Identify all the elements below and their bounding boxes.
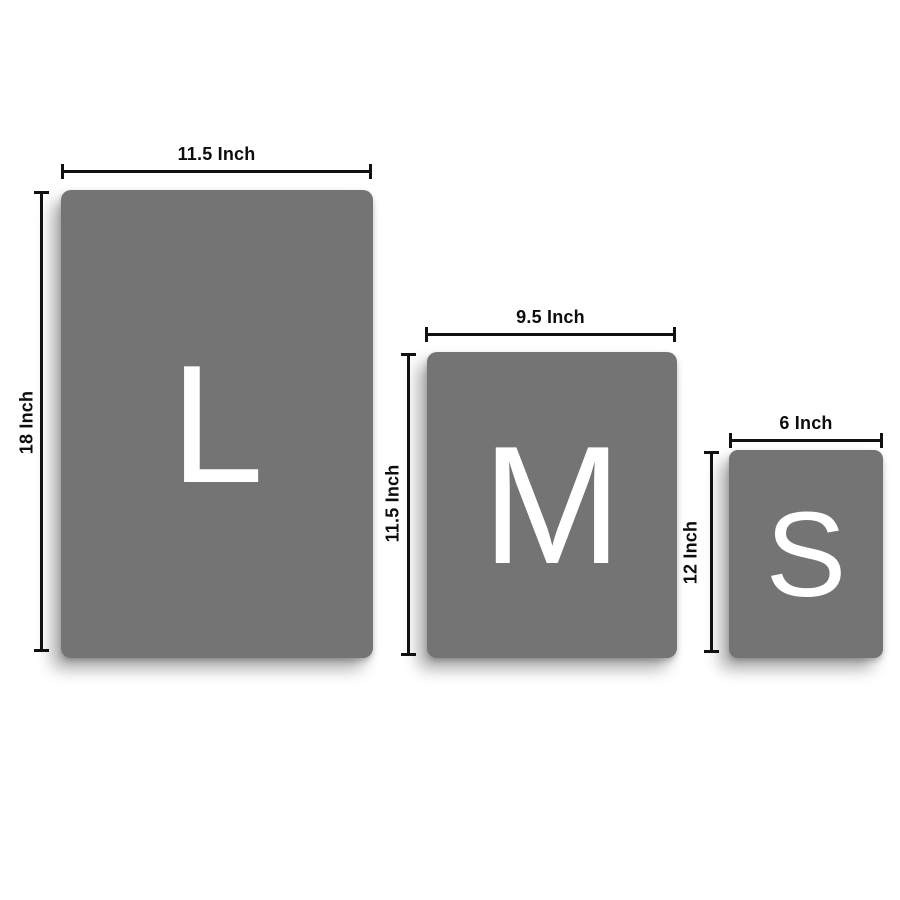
size-panel-large: L <box>61 190 373 658</box>
height-dimension-label-large: 18 Inch <box>17 323 38 523</box>
height-dimension-label-small: 12 Inch <box>681 453 702 653</box>
size-letter-medium: M <box>482 433 622 577</box>
width-dimension-line-small <box>729 439 883 442</box>
width-dimension-label-large: 11.5 Inch <box>61 144 372 165</box>
width-dimension-label-small: 6 Inch <box>729 413 883 434</box>
size-letter-large: L <box>170 352 263 496</box>
size-letter-small: S <box>766 502 847 606</box>
height-dimension-line-small <box>710 451 713 653</box>
size-panel-small: S <box>729 450 883 658</box>
height-dimension-line-large <box>40 191 43 652</box>
height-dimension-label-medium: 11.5 Inch <box>383 404 404 604</box>
size-panel-medium: M <box>427 352 677 658</box>
width-dimension-label-medium: 9.5 Inch <box>425 307 676 328</box>
height-dimension-line-medium <box>407 353 410 656</box>
width-dimension-line-large <box>61 170 372 173</box>
size-chart-canvas: 11.5 Inch 18 Inch L 9.5 Inch 11.5 Inch M… <box>0 0 900 900</box>
width-dimension-line-medium <box>425 333 676 336</box>
